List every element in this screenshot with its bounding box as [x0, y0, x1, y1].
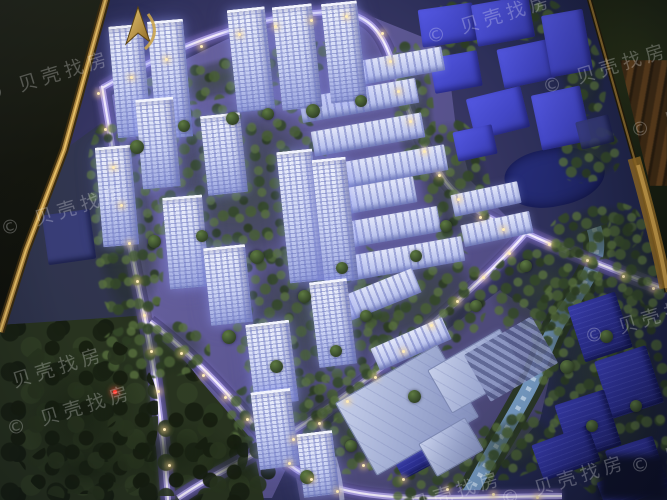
model-photo: © 贝壳找房© 贝壳找房© 贝壳找房© 贝壳找房© 贝壳找房© 贝壳找房© 贝壳…: [0, 0, 667, 500]
